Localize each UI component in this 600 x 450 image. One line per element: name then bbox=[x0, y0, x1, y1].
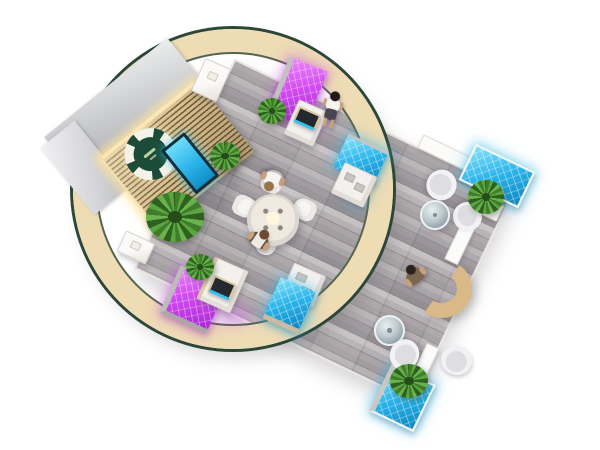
shelf-item bbox=[344, 172, 356, 183]
plant-north-kiosk bbox=[258, 98, 286, 124]
person-leg bbox=[329, 119, 334, 128]
shelf-item bbox=[295, 272, 308, 284]
plant-by-logo-wall bbox=[210, 142, 240, 170]
logo-text-mark-2 bbox=[149, 154, 156, 161]
booth-render bbox=[0, 0, 600, 450]
plant-southwest-kiosk bbox=[186, 254, 214, 280]
shelf-item bbox=[353, 182, 365, 193]
armchair-south-2 bbox=[438, 342, 475, 378]
plant-large-west bbox=[146, 192, 204, 242]
plant-east bbox=[468, 180, 504, 214]
plant-south-corner bbox=[390, 364, 428, 398]
person-leg bbox=[323, 117, 328, 126]
glass-table-east bbox=[420, 200, 450, 230]
